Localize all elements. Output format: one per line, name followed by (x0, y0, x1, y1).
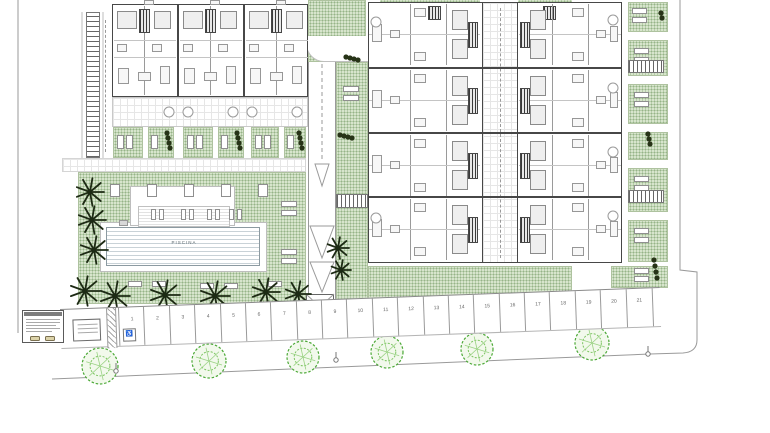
bathroom-fixture (414, 8, 426, 17)
townhouse-party-wall (243, 4, 245, 97)
parking-space: 5 (219, 303, 247, 342)
sofa (372, 219, 382, 237)
sofa (372, 155, 382, 173)
sun-lounger (343, 95, 359, 101)
townhouse-terrace (112, 97, 308, 127)
car-icon (30, 336, 40, 341)
closet (468, 88, 478, 114)
parking-space-number: 16 (500, 302, 526, 309)
table (270, 72, 283, 81)
bed (452, 39, 468, 59)
parking-space: 17 (524, 292, 552, 331)
table (390, 30, 400, 38)
parking-space: 4 (194, 304, 222, 343)
sofa (292, 66, 302, 84)
sun-lounger (632, 17, 647, 23)
sun-lounger (126, 135, 133, 149)
sun-lounger (634, 176, 649, 182)
bathroom-fixture (572, 247, 584, 256)
parking-space: 14 (448, 295, 476, 334)
bed (452, 205, 468, 225)
bathroom-fixture (414, 139, 426, 148)
sun-lounger (281, 210, 297, 216)
apartment-wall (369, 229, 480, 230)
sun-lounger (258, 184, 268, 197)
bed (452, 141, 468, 161)
sun-lounger (215, 209, 220, 220)
parking-space-number: 2 (145, 315, 171, 322)
parking-space-number: 9 (322, 308, 348, 315)
bed (183, 11, 203, 29)
parking-space: 19 (575, 290, 603, 329)
access-ramp (86, 12, 100, 158)
bathroom-fixture (249, 44, 259, 52)
sun-lounger (264, 135, 271, 149)
exterior-stair (628, 190, 664, 203)
bed (154, 11, 171, 29)
table (390, 225, 400, 233)
table (596, 96, 606, 104)
utility-box (72, 319, 101, 342)
bathroom-fixture (414, 118, 426, 127)
bathroom-fixture (183, 44, 193, 52)
sofa (372, 24, 382, 42)
sofa (118, 68, 129, 84)
sun-lounger (221, 135, 228, 149)
sun-lounger (221, 184, 231, 197)
apartment-party-wall (369, 67, 621, 69)
parking-space-number: 18 (551, 300, 577, 307)
bed (530, 205, 546, 225)
table (390, 161, 400, 169)
table (596, 30, 606, 38)
bathroom-fixture (572, 139, 584, 148)
legend-note-box (22, 310, 64, 343)
sun-lounger (268, 281, 282, 287)
sun-lounger (159, 209, 164, 220)
parking-space: 10 (346, 299, 374, 338)
sun-lounger (281, 258, 297, 264)
sun-lounger (634, 48, 649, 54)
parking-space: 13 (422, 296, 450, 335)
closet (468, 153, 478, 179)
bed (286, 11, 303, 29)
townhouse-wall (246, 57, 308, 58)
bed (249, 11, 269, 29)
sun-lounger (255, 135, 262, 149)
bed (452, 76, 468, 96)
bed (530, 141, 546, 161)
bed (530, 105, 546, 125)
parking-space-number: 6 (246, 311, 272, 318)
car-icon (45, 336, 55, 341)
parking-space: 8 (296, 300, 324, 339)
parking-space-number: 15 (474, 303, 500, 310)
sun-lounger (184, 184, 194, 197)
bathroom-fixture (218, 44, 228, 52)
sofa (250, 68, 261, 84)
sun-lounger (634, 268, 649, 274)
sun-lounger (110, 184, 120, 197)
bathroom-fixture (414, 52, 426, 61)
sun-lounger (281, 249, 297, 255)
sun-lounger (632, 8, 647, 14)
bathroom-fixture (572, 118, 584, 127)
sofa (226, 66, 236, 84)
bed (530, 39, 546, 59)
parking-space-number: 1 (119, 316, 145, 323)
bed (530, 10, 546, 30)
parking-space: 11 (372, 298, 400, 337)
swimming-pool (106, 227, 260, 266)
townhouse-wall (114, 57, 176, 58)
sun-lounger (181, 209, 186, 220)
parking-space: 15 (473, 294, 501, 333)
sun-lounger (151, 209, 156, 220)
table (596, 225, 606, 233)
parking-space: 9 (321, 299, 349, 338)
parking-space: 12 (397, 297, 425, 336)
parking-space-number: 4 (195, 313, 221, 320)
sun-lounger (634, 237, 649, 243)
parking-space: 20 (600, 289, 628, 328)
parking-space-number: 19 (576, 299, 602, 306)
parking-space: 6 (245, 302, 273, 341)
bathroom-fixture (572, 203, 584, 212)
parking-space-number: 3 (170, 314, 196, 321)
bathroom-fixture (414, 183, 426, 192)
parking-space: 1♿ (118, 307, 146, 346)
pool-label: PISCINA (158, 240, 210, 245)
parking-space: 18 (549, 291, 577, 330)
sun-lounger (634, 228, 649, 234)
bed (530, 76, 546, 96)
parking-space: 21 (625, 288, 654, 327)
apartment-wall (369, 34, 480, 35)
apartment-party-wall (369, 132, 621, 134)
sun-lounger (200, 283, 214, 289)
sofa (610, 157, 618, 173)
wheelchair-icon: ♿ (123, 328, 136, 341)
apartment-party-wall (369, 196, 621, 198)
parking-space-number: 21 (627, 297, 653, 304)
legend-text-line (26, 328, 60, 329)
parking-space-number: 14 (449, 304, 475, 311)
sun-lounger (237, 209, 242, 220)
bed (530, 234, 546, 254)
exterior-stair (628, 60, 664, 73)
legend-text-line (26, 319, 60, 320)
bathroom-fixture (414, 203, 426, 212)
bed (452, 105, 468, 125)
parking-space-number: 17 (525, 301, 551, 308)
table (138, 72, 151, 81)
parking-space-number: 8 (297, 309, 323, 316)
parking-space-number: 20 (601, 298, 627, 305)
townhouse-party-wall (177, 4, 179, 97)
closet (520, 153, 530, 179)
sofa (184, 68, 195, 84)
closet (468, 22, 478, 48)
parking-space: 2 (143, 306, 171, 345)
parking-space: 7 (270, 301, 298, 340)
chimney (276, 0, 286, 5)
utility-box-text-line (78, 324, 98, 326)
sun-lounger (152, 281, 166, 287)
apartment-wall (369, 100, 480, 101)
bathroom-fixture (117, 44, 127, 52)
crosswalk-hatch (106, 308, 117, 348)
table (596, 161, 606, 169)
driveway (308, 62, 336, 320)
sun-lounger (196, 135, 203, 149)
sofa (372, 90, 382, 108)
legend-text-line (26, 322, 60, 323)
sun-lounger (187, 135, 194, 149)
bathroom-fixture (414, 74, 426, 83)
parking-space-number: 12 (398, 306, 424, 313)
sun-lounger (229, 209, 234, 220)
sofa (160, 66, 170, 84)
closet (520, 217, 530, 243)
sun-lounger (207, 209, 212, 220)
townhouse-wall (180, 57, 242, 58)
closet (520, 22, 530, 48)
table (204, 72, 217, 81)
stair-core (271, 9, 282, 33)
parking-space-number: 5 (221, 312, 247, 319)
bed (452, 170, 468, 190)
utility-box-text-line (78, 328, 98, 330)
sun-lounger (224, 283, 238, 289)
bathroom-fixture (414, 247, 426, 256)
utility-box-text-line (78, 332, 98, 334)
site-plan: 1♿23456789101112131415161718192021 PISCI… (0, 0, 770, 433)
bathroom-fixture (572, 183, 584, 192)
table (390, 96, 400, 104)
parking-space-number: 7 (272, 310, 298, 317)
sun-lounger (151, 135, 158, 149)
legend-title-bar (24, 312, 62, 316)
chimney (210, 0, 220, 5)
parking-space-number: 11 (373, 307, 399, 314)
stair-core (139, 9, 150, 33)
sofa (610, 26, 618, 42)
path-curve (306, 36, 368, 62)
sofa (610, 92, 618, 108)
bed (452, 234, 468, 254)
bed (117, 11, 137, 29)
legend-text-line (26, 325, 56, 326)
apartment-wall (369, 165, 480, 166)
chimney (144, 0, 154, 5)
stair-core (205, 9, 216, 33)
sun-lounger (343, 86, 359, 92)
sun-lounger (281, 201, 297, 207)
sun-lounger (117, 135, 124, 149)
ramp-guide (105, 20, 106, 152)
parking-space-number: 13 (424, 305, 450, 312)
bed (220, 11, 237, 29)
legend-text-line (26, 331, 52, 332)
sun-lounger (634, 101, 649, 107)
sun-lounger (634, 92, 649, 98)
sun-lounger (147, 184, 157, 197)
plan-layer: 1♿23456789101112131415161718192021 (0, 0, 770, 433)
townhouse-wall (114, 40, 176, 41)
stair-core (428, 6, 441, 20)
bathroom-fixture (572, 74, 584, 83)
townhouse-wall (246, 40, 308, 41)
sun-lounger (634, 276, 649, 282)
sofa (610, 221, 618, 237)
bed (530, 170, 546, 190)
parking-space-number: 10 (348, 308, 374, 315)
sun-lounger (189, 209, 194, 220)
townhouse-walkway (62, 158, 306, 172)
parking-space: 16 (498, 293, 526, 332)
closet (468, 217, 478, 243)
closet (520, 88, 530, 114)
footbridge-stair (336, 194, 368, 208)
bed (452, 10, 468, 30)
bathroom-fixture (284, 44, 294, 52)
bench (119, 220, 128, 226)
sun-lounger (287, 135, 294, 149)
parking-space: 3 (169, 305, 197, 344)
bathroom-fixture (572, 52, 584, 61)
sun-lounger (128, 281, 142, 287)
bathroom-fixture (152, 44, 162, 52)
bathroom-fixture (572, 8, 584, 17)
garden-private-plot (628, 132, 668, 160)
townhouse-wall (180, 40, 242, 41)
